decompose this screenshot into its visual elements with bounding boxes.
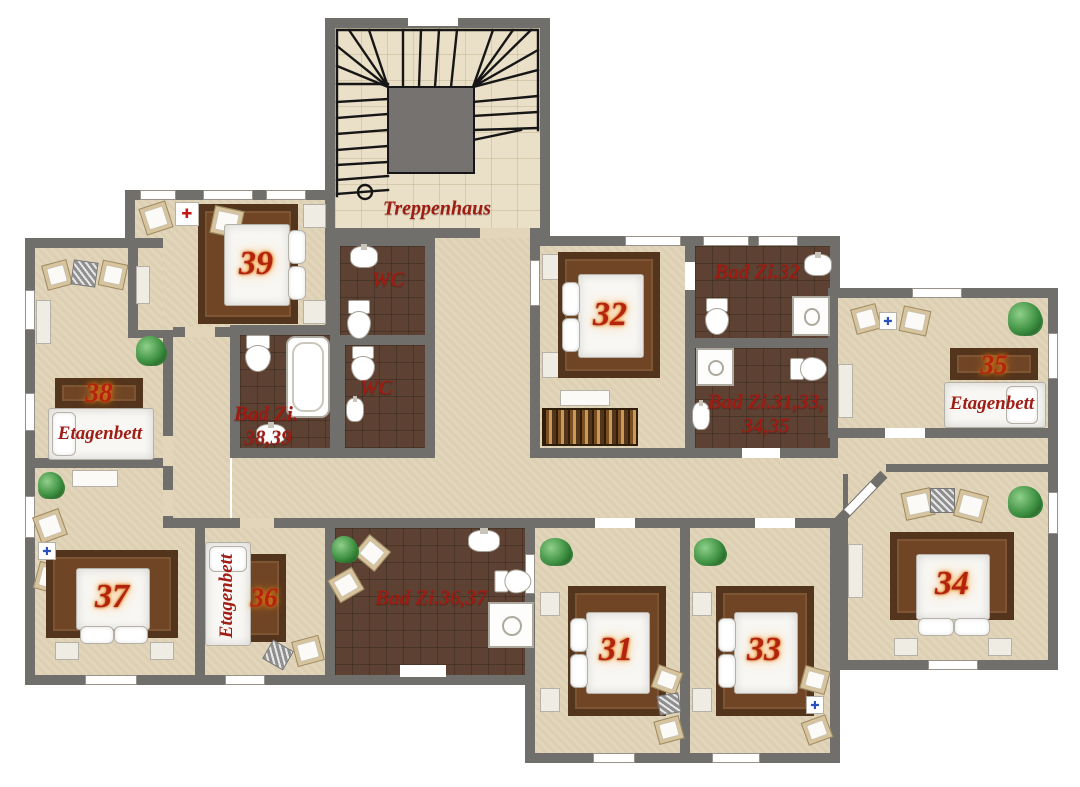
room-34-number: 34: [935, 565, 969, 603]
window: [1048, 333, 1058, 379]
pillow: [114, 626, 148, 644]
room-31-number: 31: [599, 631, 633, 669]
room-36-number: 36: [251, 583, 278, 614]
corridor-main: [232, 458, 843, 518]
door-treppenhaus: [480, 228, 530, 238]
sideboard: [560, 390, 610, 406]
nightstand: [303, 204, 326, 228]
first-aid-icon: ✚: [175, 202, 199, 226]
nightstand: [988, 638, 1012, 656]
window: [625, 236, 681, 246]
pillow: [288, 230, 306, 264]
room-33-number: 33: [747, 631, 781, 669]
corridor-stairs: [435, 238, 530, 458]
door-room-35: [885, 428, 925, 438]
nightstand: [540, 688, 560, 712]
corner-sink: [346, 398, 364, 422]
bad-31-33-34-35-label-line2: 34,35: [742, 414, 789, 439]
bad-38-39-label-line2: 38,39: [244, 426, 291, 451]
chair: [98, 260, 129, 291]
door-room-39: [185, 327, 215, 337]
window: [85, 675, 137, 685]
wc-upper-label: WC: [372, 268, 405, 293]
patch-39-floor: [163, 238, 173, 330]
compass-icon: ✚: [806, 696, 824, 714]
pillow: [288, 266, 306, 300]
window: [266, 190, 306, 200]
etagenbett-label-38: Etagenbett: [58, 423, 142, 445]
bad-36-37-label: Bad Zi.36,37: [375, 586, 486, 611]
room-35-number: 35: [981, 350, 1008, 381]
bench: [838, 364, 853, 418]
room-32-number: 32: [593, 296, 627, 334]
nightstand: [692, 592, 712, 616]
plant: [38, 472, 64, 499]
room-39-number: 39: [239, 245, 273, 283]
pillow: [918, 618, 954, 636]
bad-32-label: Bad Zi.32: [714, 260, 799, 285]
etagenbett-label-36: Etagenbett: [216, 554, 238, 638]
window: [203, 190, 253, 200]
plant: [694, 538, 726, 566]
window: [25, 290, 35, 330]
toilet: [346, 300, 370, 338]
bench: [848, 544, 863, 598]
door-bad-31-33-34-35: [742, 448, 780, 458]
window: [530, 260, 540, 306]
room-38-number: 38: [86, 378, 113, 409]
table: [656, 692, 681, 716]
nightstand: [150, 642, 174, 660]
wc-lower-label: WC: [360, 376, 393, 401]
bench: [136, 266, 150, 304]
window: [912, 288, 962, 298]
pillow: [718, 654, 736, 688]
compass-icon: ✚: [38, 542, 56, 560]
door-room-36: [240, 518, 274, 528]
door-room-33: [755, 518, 795, 528]
wall-outer-right-gap: [1048, 428, 1058, 474]
sink: [350, 246, 378, 268]
floor-plan: ✚ ✚: [0, 0, 1080, 787]
shower: [488, 602, 534, 648]
window: [712, 753, 760, 763]
sideboard: [72, 470, 118, 487]
toilet: [790, 358, 826, 382]
wall-corridor-36: [163, 518, 205, 528]
window: [928, 660, 978, 670]
sink: [468, 530, 500, 552]
bad-31-33-34-35-label-line1: Bad Zi.31,33,: [708, 390, 825, 415]
door-room-31: [595, 518, 635, 528]
door-room-37: [163, 490, 173, 516]
pillow: [562, 318, 580, 352]
plant: [540, 538, 572, 566]
pillow: [954, 618, 990, 636]
door-bad-32: [685, 262, 695, 290]
door-bad-36-37: [400, 665, 446, 677]
pillow: [80, 626, 114, 644]
pillow: [570, 618, 588, 652]
window: [758, 236, 798, 246]
pillow: [718, 618, 736, 652]
window: [25, 393, 35, 431]
shower: [696, 348, 734, 386]
plant: [332, 536, 358, 563]
window: [140, 190, 176, 200]
window: [225, 675, 265, 685]
pillow: [570, 654, 588, 688]
nightstand: [303, 300, 326, 324]
etagenbett-label-35: Etagenbett: [950, 393, 1034, 415]
toilet: [704, 298, 728, 334]
nightstand: [894, 638, 918, 656]
nightstand: [55, 642, 79, 660]
plant: [1008, 302, 1042, 336]
window: [593, 753, 635, 763]
door-room-38: [163, 436, 173, 466]
corridor-right-vestibule: [838, 438, 886, 474]
chair: [899, 305, 932, 336]
plant: [1008, 486, 1042, 518]
shower: [792, 296, 830, 336]
plant: [136, 336, 166, 366]
sink: [804, 254, 832, 276]
bench: [36, 300, 51, 344]
wardrobe: [542, 408, 638, 446]
door-stairwell-top: [408, 16, 458, 26]
table: [70, 259, 98, 287]
nightstand: [540, 592, 560, 616]
window: [703, 236, 749, 246]
pillow: [562, 282, 580, 316]
toilet: [244, 335, 270, 371]
nightstand: [692, 688, 712, 712]
toilet: [494, 570, 530, 594]
corridor-vertical-left: [173, 337, 230, 518]
treppenhaus-label: Treppenhaus: [383, 198, 491, 221]
window: [1048, 492, 1058, 534]
compass-icon: ✚: [879, 312, 897, 330]
bad-38-39-label-line1: Bad Zi.: [234, 402, 298, 427]
room-37-number: 37: [95, 578, 129, 616]
table: [930, 488, 955, 513]
